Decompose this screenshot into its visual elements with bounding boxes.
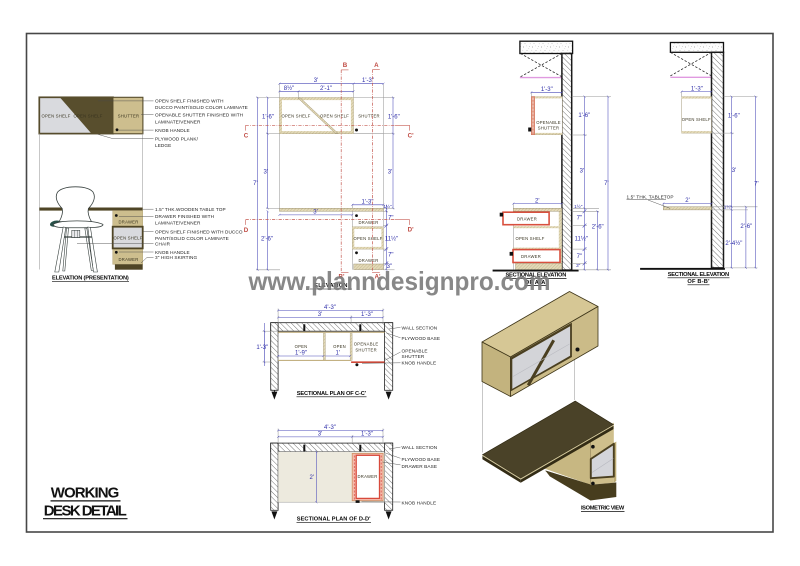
- svg-text:OPENABLE: OPENABLE: [354, 342, 379, 347]
- svg-text:DRAWER: DRAWER: [517, 217, 537, 222]
- svg-text:1'-6": 1'-6": [578, 113, 590, 119]
- svg-text:7': 7': [253, 181, 257, 187]
- svg-text:SHUTTER: SHUTTER: [358, 113, 380, 118]
- svg-text:1.5" THK. TABLETOP: 1.5" THK. TABLETOP: [627, 194, 674, 199]
- svg-text:3': 3': [314, 78, 318, 84]
- svg-text:3': 3': [318, 312, 322, 318]
- svg-text:7': 7': [754, 181, 758, 187]
- svg-text:1½": 1½": [574, 203, 583, 210]
- svg-text:OPEN SHELF FINISHED WITH: OPEN SHELF FINISHED WITH: [155, 99, 224, 104]
- svg-text:3': 3': [388, 169, 392, 175]
- svg-text:OPEN SHELF: OPEN SHELF: [515, 236, 544, 241]
- svg-text:KNOB HANDLE: KNOB HANDLE: [402, 500, 437, 505]
- svg-text:OPEN SHELF: OPEN SHELF: [320, 113, 349, 118]
- svg-text:3': 3': [313, 210, 317, 216]
- svg-text:2'-4½": 2'-4½": [725, 240, 742, 247]
- svg-text:PLYWOOD PLANK/: PLYWOOD PLANK/: [155, 137, 199, 142]
- svg-text:OPEN SHELF FINISHED WITH DUCCO: OPEN SHELF FINISHED WITH DUCCO: [155, 229, 243, 234]
- svg-text:DRAWER BASE: DRAWER BASE: [402, 464, 438, 469]
- svg-text:2': 2': [685, 198, 689, 204]
- svg-text:2': 2': [535, 198, 539, 204]
- svg-text:SECTIONAL PLAN OF D-D': SECTIONAL PLAN OF D-D': [297, 516, 371, 522]
- svg-text:1'-6": 1'-6": [388, 114, 400, 120]
- svg-text:OPEN SHELF: OPEN SHELF: [73, 114, 102, 119]
- svg-text:4'-3": 4'-3": [324, 425, 336, 431]
- svg-text:LAMINATE/VENNER: LAMINATE/VENNER: [155, 119, 201, 124]
- svg-text:www.planndesignpro.com: www.planndesignpro.com: [248, 266, 551, 296]
- svg-text:OPEN: OPEN: [333, 344, 346, 349]
- svg-text:SECTIONAL ELEVATION: SECTIONAL ELEVATION: [668, 272, 730, 278]
- svg-text:WALL SECTION: WALL SECTION: [402, 325, 438, 330]
- svg-text:7": 7": [388, 215, 393, 221]
- svg-text:7": 7": [577, 254, 582, 260]
- svg-text:3': 3': [580, 169, 584, 175]
- svg-text:3': 3': [318, 432, 322, 438]
- svg-text:CHAIR: CHAIR: [155, 242, 171, 247]
- svg-text:DRAWER FINISHED WITH: DRAWER FINISHED WITH: [155, 214, 214, 219]
- svg-text:1'-3": 1'-3": [361, 432, 373, 438]
- svg-text:LEDGE: LEDGE: [155, 143, 171, 148]
- svg-text:8½": 8½": [284, 85, 294, 92]
- svg-text:KNOB HANDLE: KNOB HANDLE: [402, 361, 437, 366]
- svg-text:PLYWOOD BASE: PLYWOOD BASE: [402, 457, 441, 462]
- svg-text:SECTIONAL PLAN OF C-C': SECTIONAL PLAN OF C-C': [297, 391, 367, 397]
- svg-text:1½": 1½": [383, 203, 392, 210]
- svg-text:1½": 1½": [724, 203, 733, 210]
- svg-text:DRAWER: DRAWER: [521, 254, 541, 259]
- svg-text:2'-6": 2'-6": [261, 236, 273, 242]
- svg-text:1': 1': [335, 351, 339, 357]
- svg-text:C: C: [244, 133, 249, 140]
- svg-text:2'-1": 2'-1": [320, 86, 332, 92]
- svg-text:1'-3": 1'-3": [361, 312, 373, 318]
- svg-text:A: A: [374, 62, 379, 69]
- svg-text:2'-6": 2'-6": [740, 224, 752, 230]
- svg-text:OPEN SHELF: OPEN SHELF: [353, 236, 382, 241]
- svg-text:7': 7': [604, 181, 608, 187]
- svg-text:SHUTTER: SHUTTER: [118, 114, 140, 119]
- svg-text:11½": 11½": [575, 236, 588, 243]
- svg-text:KNOB HANDLE: KNOB HANDLE: [155, 250, 190, 255]
- svg-text:DESK DETAIL: DESK DETAIL: [44, 502, 127, 519]
- svg-text:1.5" THK.WOODEN TABLE TOP: 1.5" THK.WOODEN TABLE TOP: [155, 207, 226, 212]
- svg-text:DUCCO PAINT/SOLID COLOR LAMINA: DUCCO PAINT/SOLID COLOR LAMINATE: [155, 105, 248, 110]
- svg-text:D: D: [244, 227, 249, 234]
- svg-text:ELEVATION (PRESENTATION): ELEVATION (PRESENTATION): [52, 276, 129, 282]
- svg-text:DRAWER: DRAWER: [119, 257, 139, 262]
- svg-text:DRAWER: DRAWER: [358, 474, 378, 479]
- svg-text:SHUTTER: SHUTTER: [538, 126, 560, 131]
- svg-text:2'-6": 2'-6": [592, 224, 604, 230]
- svg-text:1'-3": 1'-3": [256, 345, 268, 351]
- svg-text:2': 2': [310, 475, 314, 481]
- svg-text:7": 7": [388, 252, 393, 258]
- svg-text:C': C': [408, 132, 414, 139]
- svg-text:WORKING: WORKING: [51, 485, 120, 502]
- svg-text:11½": 11½": [385, 236, 398, 243]
- svg-text:OPEN SHELF: OPEN SHELF: [281, 113, 310, 118]
- svg-text:KNOB HANDLE: KNOB HANDLE: [155, 128, 190, 133]
- svg-text:SHUTTER: SHUTTER: [402, 354, 425, 359]
- svg-text:1'-6": 1'-6": [262, 114, 274, 120]
- svg-text:OPEN SHELF: OPEN SHELF: [682, 117, 711, 122]
- svg-text:OPENABLE: OPENABLE: [402, 348, 428, 353]
- svg-text:OF B-B': OF B-B': [687, 279, 710, 285]
- svg-text:B: B: [343, 62, 348, 69]
- svg-text:WALL SECTION: WALL SECTION: [402, 445, 438, 450]
- svg-text:PLYWOOD BASE: PLYWOOD BASE: [402, 336, 441, 341]
- svg-text:1'-6": 1'-6": [728, 113, 740, 119]
- svg-text:SHUTTER: SHUTTER: [355, 347, 377, 352]
- svg-text:OPEN SHELF: OPEN SHELF: [41, 114, 70, 119]
- svg-text:DRAWER: DRAWER: [359, 258, 379, 263]
- svg-text:OPENABLE: OPENABLE: [536, 120, 561, 125]
- svg-text:LAMINATE/VENNER: LAMINATE/VENNER: [155, 221, 201, 226]
- svg-text:4'-3": 4'-3": [324, 305, 336, 311]
- svg-text:1'-3": 1'-3": [691, 86, 703, 92]
- svg-text:3": 3": [576, 263, 581, 269]
- svg-text:ISOMETRIC VIEW: ISOMETRIC VIEW: [581, 506, 625, 512]
- svg-text:D': D': [408, 227, 414, 234]
- svg-text:3': 3': [732, 168, 736, 174]
- svg-text:1'-3": 1'-3": [541, 87, 553, 93]
- svg-text:3" HIGH SKIRTING: 3" HIGH SKIRTING: [155, 255, 198, 260]
- svg-text:OPEN: OPEN: [295, 344, 308, 349]
- svg-text:1'-9": 1'-9": [295, 351, 307, 357]
- svg-text:DRAWER: DRAWER: [359, 220, 379, 225]
- svg-text:DRAWER: DRAWER: [119, 219, 139, 224]
- svg-text:OPEN SHELF: OPEN SHELF: [113, 235, 142, 240]
- svg-text:7": 7": [577, 215, 582, 221]
- svg-text:3': 3': [264, 169, 268, 175]
- svg-text:PAINT/SOLID COLOR LAMINATE: PAINT/SOLID COLOR LAMINATE: [155, 236, 229, 241]
- svg-text:1'-3": 1'-3": [362, 199, 374, 205]
- svg-text:OPENABLE SHUTTER FINISHED WITH: OPENABLE SHUTTER FINISHED WITH: [155, 113, 243, 118]
